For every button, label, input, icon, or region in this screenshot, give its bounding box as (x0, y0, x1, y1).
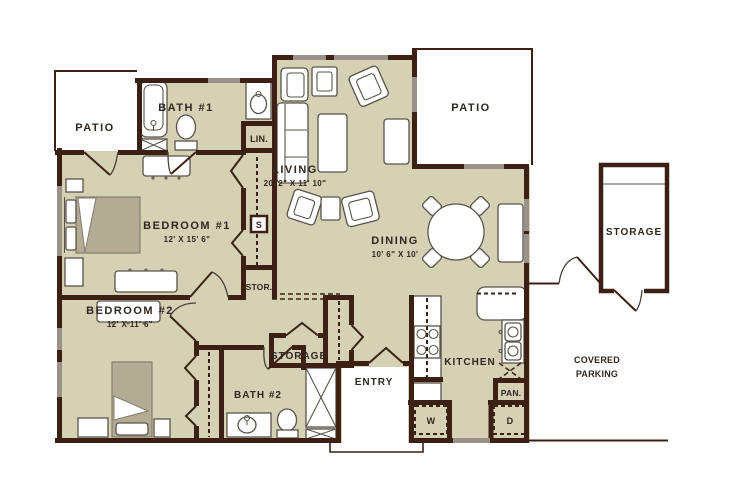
closet-column-floor (242, 121, 276, 299)
dryer-label: D (507, 416, 514, 426)
porch-floor (331, 443, 423, 452)
gate-leaf (577, 257, 601, 284)
bed-icon (112, 362, 152, 437)
armchair-icon (281, 68, 308, 101)
covered-parking-label-2: PARKING (576, 369, 618, 379)
floor-plan: PATIO BATH #1 LIN. LIVING 20' 2" X 11' 1… (0, 0, 730, 500)
patio-left-label: PATIO (75, 122, 114, 134)
kitchen-label: KITCHEN (444, 357, 495, 368)
bathtub-icon (306, 368, 336, 439)
pantry-label: PAN. (501, 388, 521, 398)
bed-icon (65, 197, 141, 253)
coffee-table-icon (384, 119, 409, 164)
bedroom1-dims: 12' X 15' 6" (164, 235, 211, 244)
stor-closet-label: STOR. (246, 282, 273, 292)
side-table-icon (312, 67, 337, 96)
shelf-label: S (256, 220, 262, 230)
dining-table-icon (428, 204, 484, 260)
buffet-icon (498, 204, 523, 262)
patio-right-label: PATIO (451, 102, 490, 114)
cabinet-icon (140, 139, 167, 151)
bedroom2-label: BEDROOM #2 (86, 305, 174, 317)
bath2-label: BATH #2 (234, 390, 282, 401)
living-label: LIVING (272, 164, 318, 176)
nightstand-icon (66, 179, 83, 192)
sink-icon (246, 80, 271, 119)
dining-furniture (421, 195, 523, 268)
washer-label: W (427, 416, 436, 426)
bedroom2-dims: 12' X 11' 6" (107, 320, 153, 329)
living-dims: 20' 2" X 11' 10" (264, 179, 327, 188)
dresser-icon (143, 156, 190, 179)
console-table-icon (318, 114, 347, 172)
gate-arc (559, 257, 577, 284)
small-table-icon (321, 197, 340, 220)
nightstand-icon (154, 419, 170, 437)
sink-icon (227, 413, 271, 437)
linen-label: LIN. (250, 134, 268, 144)
bath1-label: BATH #1 (158, 102, 214, 114)
toilet-icon (277, 409, 298, 438)
covered-parking-label-1: COVERED (574, 355, 620, 365)
storage-mid-label: STORAGE (271, 351, 327, 362)
exterior-storage-unit (601, 165, 667, 311)
kitchen-sink-icon (499, 320, 524, 363)
nightstand-icon (65, 258, 83, 286)
floor-plan-page: PATIO BATH #1 LIN. LIVING 20' 2" X 11' 1… (0, 0, 730, 500)
bedroom1-label: BEDROOM #1 (143, 220, 231, 232)
dining-dims: 10' 6" X 10' (372, 250, 419, 259)
nightstand-icon (78, 418, 108, 437)
entry-label: ENTRY (355, 377, 394, 388)
peninsula-counter (477, 287, 527, 320)
dresser-icon (115, 269, 177, 292)
refrigerator-icon (413, 383, 441, 402)
dining-label: DINING (371, 235, 419, 247)
toilet-icon (175, 115, 197, 150)
patio-left-floor (54, 70, 137, 151)
storage-ext-label: STORAGE (606, 227, 662, 238)
